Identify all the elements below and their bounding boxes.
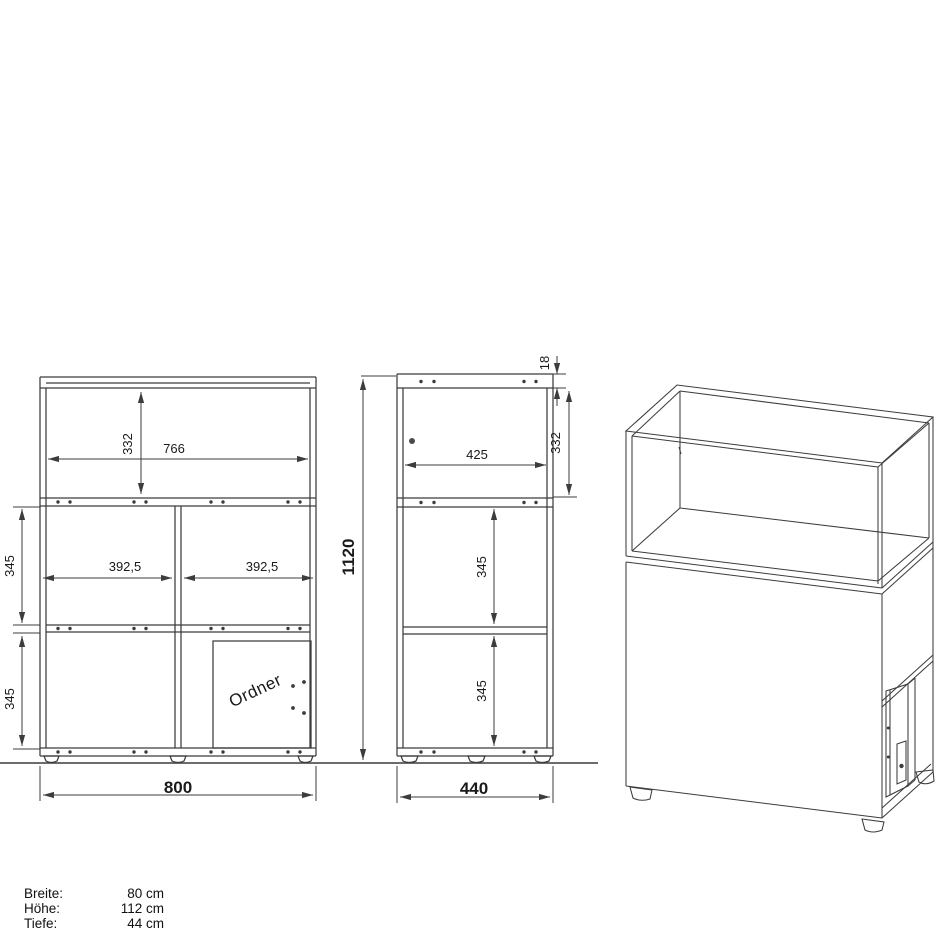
dim-front-800: 800 [164, 778, 192, 797]
spec-value: 112 cm [78, 901, 164, 916]
spec-value: 44 cm [78, 916, 164, 931]
dim-side-345-mid: 345 [474, 556, 489, 578]
binder [886, 678, 915, 797]
specs-block: Breite: 80 cm Höhe: 112 cm Tiefe: 44 cm [24, 886, 164, 931]
perspective-view [626, 385, 934, 832]
dim-front-3925-left: 392,5 [109, 559, 142, 574]
technical-drawing-canvas: Ordner 332 766 392,5 392,5 345 345 800 [0, 0, 940, 940]
dim-side-332: 332 [548, 432, 563, 454]
spec-row-breite: Breite: 80 cm [24, 886, 164, 901]
ordner-door-label: Ordner [226, 670, 285, 711]
dim-front-332: 332 [120, 433, 135, 455]
spec-value: 80 cm [78, 886, 164, 901]
side-view-cam-hole [409, 438, 415, 444]
perspective-feet [630, 770, 934, 832]
dim-side-18: 18 [537, 356, 552, 370]
dim-side-440: 440 [460, 779, 488, 798]
dim-side-345-bottom: 345 [474, 680, 489, 702]
side-view-feet [401, 756, 551, 763]
drawing-svg: Ordner 332 766 392,5 392,5 345 345 800 [0, 0, 940, 940]
dim-side-425: 425 [466, 447, 488, 462]
dim-side-1120: 1120 [339, 539, 358, 576]
front-view-feet [44, 756, 313, 763]
dim-front-345-mid: 345 [2, 555, 17, 577]
side-view-dimensions [361, 356, 577, 803]
dim-front-345-bottom: 345 [2, 688, 17, 710]
dim-front-3925-right: 392,5 [246, 559, 279, 574]
binder-grip-hole [899, 764, 903, 768]
spec-row-tiefe: Tiefe: 44 cm [24, 916, 164, 931]
dim-front-766: 766 [163, 441, 185, 456]
spec-row-hoehe: Höhe: 112 cm [24, 901, 164, 916]
spec-label: Höhe: [24, 901, 78, 916]
spec-label: Breite: [24, 886, 78, 901]
spec-label: Tiefe: [24, 916, 78, 931]
